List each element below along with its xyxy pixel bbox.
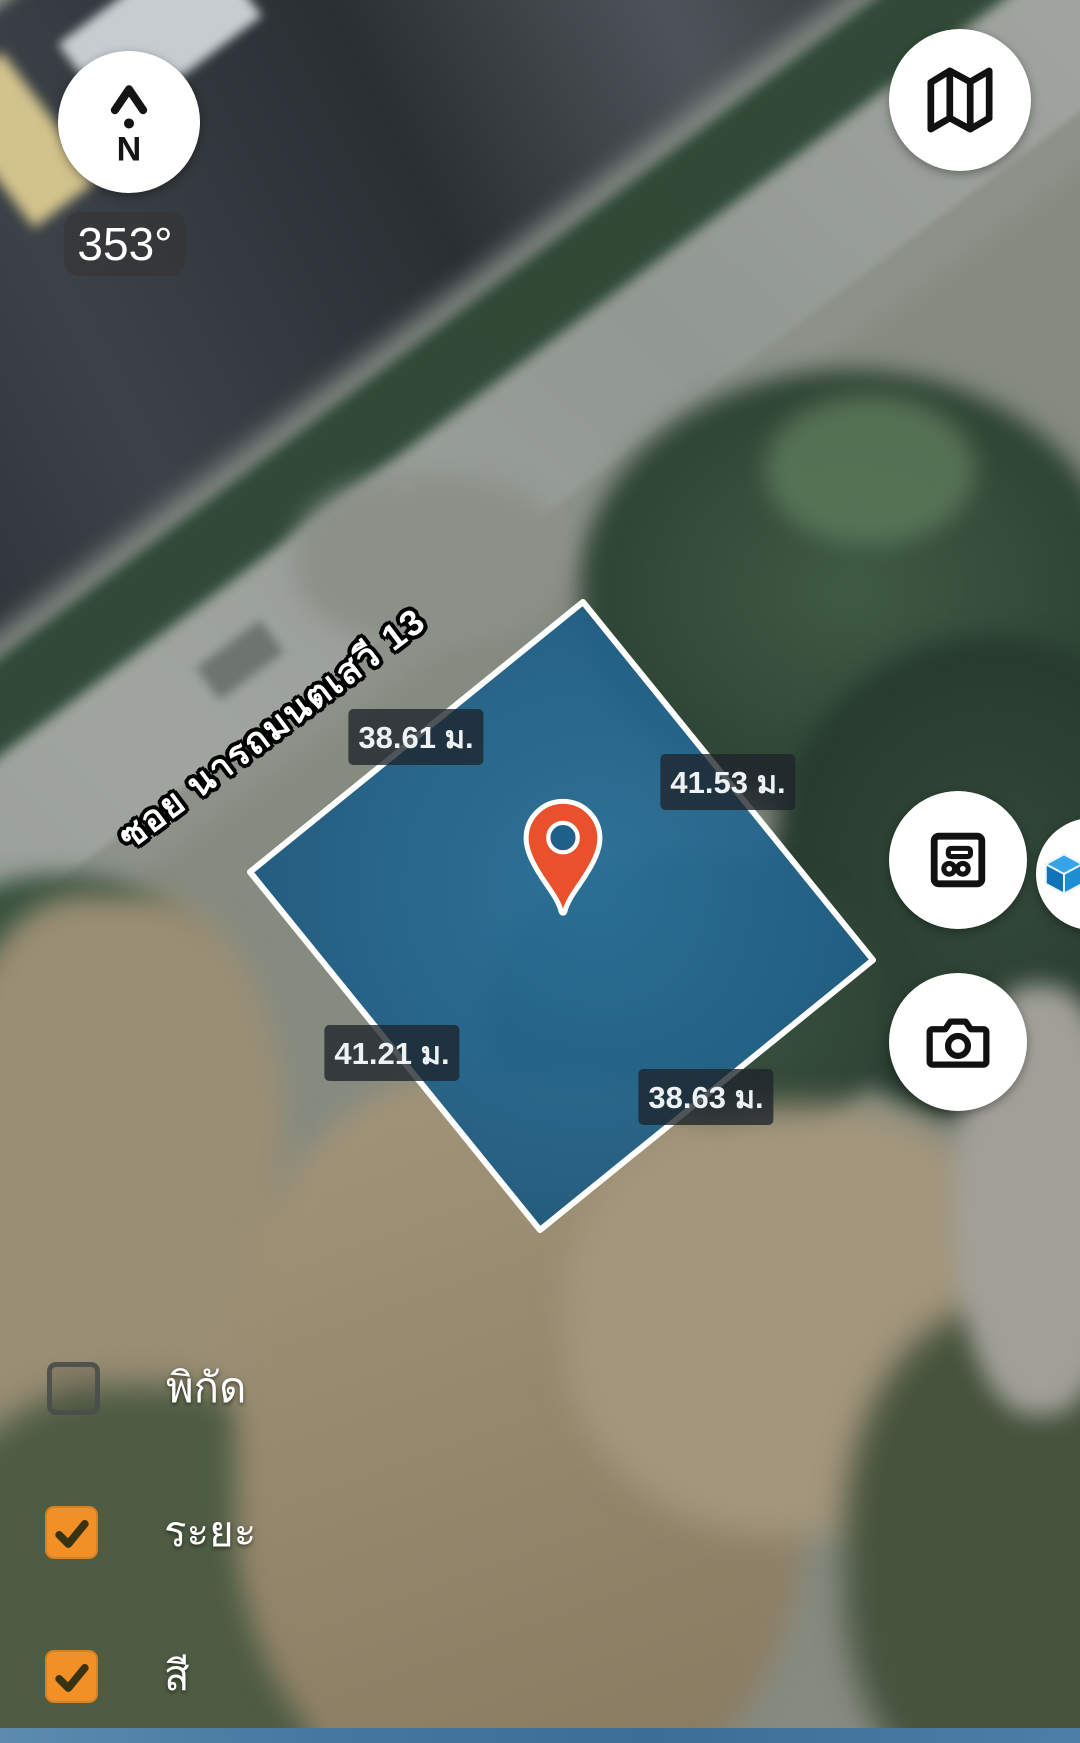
camera-icon	[924, 1008, 992, 1076]
floor-plan-icon	[924, 826, 992, 894]
layer-row-color[interactable]: สี	[45, 1643, 190, 1709]
cube-3d-icon	[1036, 846, 1080, 902]
color-checkbox[interactable]	[45, 1650, 98, 1703]
coordinates-label: พิกัด	[166, 1355, 246, 1421]
map-canvas: ซอย นารถมนตเสวี 13 38.61 ม. 41.53 ม. 41.…	[0, 0, 1080, 1743]
map-icon	[925, 65, 995, 135]
layer-row-distance[interactable]: ระยะ	[45, 1499, 256, 1565]
compass-north-label: N	[117, 131, 142, 165]
floor-plan-button[interactable]	[889, 791, 1027, 929]
check-icon	[50, 1655, 94, 1699]
color-label: สี	[164, 1643, 190, 1709]
compass-button[interactable]: N	[58, 51, 200, 193]
heading-badge: 353°	[64, 212, 186, 276]
check-icon	[50, 1511, 94, 1555]
measurement-north-west: 38.61 ม.	[348, 709, 483, 765]
measurement-south-east: 38.63 ม.	[638, 1069, 773, 1125]
location-pin-icon[interactable]	[520, 797, 606, 924]
layer-row-coordinates[interactable]: พิกัด	[47, 1355, 246, 1421]
heading-value: 353°	[77, 217, 172, 271]
bottom-bar-edge	[0, 1728, 1080, 1743]
camera-button[interactable]	[889, 973, 1027, 1111]
distance-checkbox[interactable]	[45, 1506, 98, 1559]
measurement-south-west: 41.21 ม.	[324, 1025, 459, 1081]
north-chevron-icon: N	[100, 79, 158, 165]
measurement-north-east: 41.53 ม.	[660, 754, 795, 810]
distance-label: ระยะ	[164, 1499, 256, 1565]
coordinates-checkbox[interactable]	[47, 1362, 100, 1415]
map-button[interactable]	[889, 29, 1031, 171]
